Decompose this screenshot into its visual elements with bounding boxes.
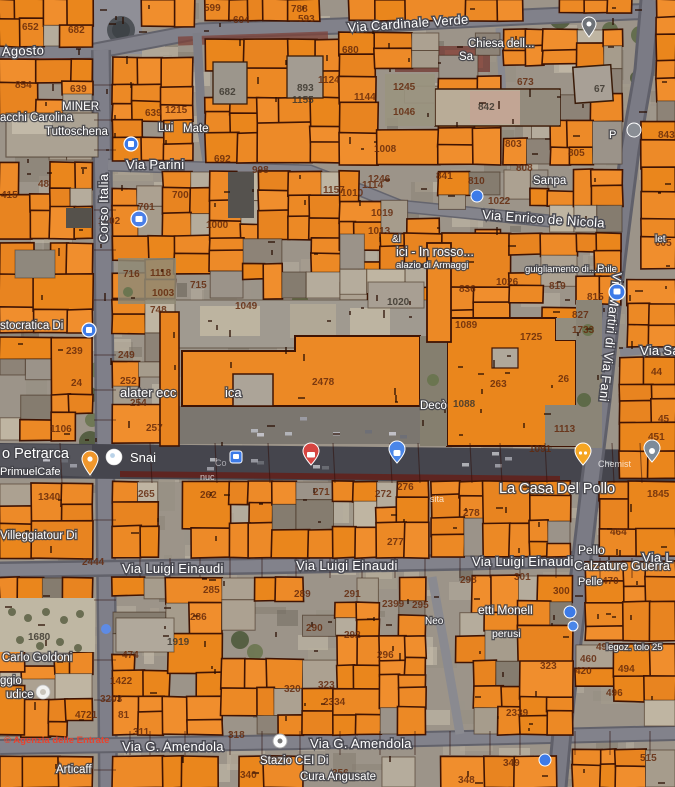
svg-text:La Casa Del Pollo: La Casa Del Pollo xyxy=(499,481,615,497)
svg-text:1049: 1049 xyxy=(235,301,258,312)
svg-text:Sanpa: Sanpa xyxy=(533,175,567,187)
svg-text:349: 349 xyxy=(503,758,520,769)
svg-text:1245: 1245 xyxy=(393,82,416,93)
svg-text:2334: 2334 xyxy=(323,697,346,708)
svg-text:836: 836 xyxy=(459,284,476,295)
svg-text:48: 48 xyxy=(38,179,50,190)
svg-text:808: 808 xyxy=(516,163,533,174)
svg-text:286: 286 xyxy=(190,612,207,623)
svg-text:1013: 1013 xyxy=(368,226,391,237)
svg-text:340: 340 xyxy=(240,770,257,781)
svg-text:593: 593 xyxy=(298,14,315,25)
svg-text:24: 24 xyxy=(71,378,83,389)
svg-text:494: 494 xyxy=(618,664,635,675)
svg-text:&l: &l xyxy=(392,234,401,245)
svg-text:464: 464 xyxy=(610,527,627,538)
svg-text:Calzature Guerra: Calzature Guerra xyxy=(574,559,670,573)
svg-text:1046: 1046 xyxy=(393,107,416,118)
svg-text:682: 682 xyxy=(219,87,236,98)
svg-text:Via Parini: Via Parini xyxy=(126,157,184,172)
svg-text:Pelle: Pelle xyxy=(578,576,602,588)
svg-text:81: 81 xyxy=(118,710,130,721)
svg-text:legoz. tolo 25: legoz. tolo 25 xyxy=(606,642,663,653)
svg-text:Mate: Mate xyxy=(183,123,209,135)
svg-text:67: 67 xyxy=(594,84,606,95)
svg-text:1019: 1019 xyxy=(371,208,394,219)
svg-text:265: 265 xyxy=(138,489,155,500)
svg-text:1026: 1026 xyxy=(496,277,519,288)
svg-text:998: 998 xyxy=(252,165,269,176)
svg-text:278: 278 xyxy=(463,508,480,519)
svg-text:o Petrarca: o Petrarca xyxy=(2,446,70,462)
svg-text:udice: udice xyxy=(6,689,34,701)
svg-text:496: 496 xyxy=(606,688,623,699)
svg-text:26: 26 xyxy=(558,374,570,385)
svg-text:300: 300 xyxy=(553,586,570,597)
svg-text:Neo: Neo xyxy=(425,616,444,627)
svg-text:515: 515 xyxy=(640,753,657,764)
svg-text:810: 810 xyxy=(468,176,485,187)
svg-text:652: 652 xyxy=(22,22,39,33)
svg-text:3203: 3203 xyxy=(100,694,123,705)
svg-text:alazio di Armaggi: alazio di Armaggi xyxy=(396,260,468,271)
svg-text:291: 291 xyxy=(344,589,361,600)
svg-text:323: 323 xyxy=(540,661,557,672)
svg-text:1155: 1155 xyxy=(292,95,314,106)
svg-text:1845: 1845 xyxy=(647,489,670,500)
svg-text:Villeggiatour Di: Villeggiatour Di xyxy=(0,530,77,542)
svg-text:272: 272 xyxy=(375,489,392,500)
svg-text:680: 680 xyxy=(342,45,359,56)
svg-text:1215: 1215 xyxy=(165,105,188,116)
svg-text:Via Luigi Einaudi: Via Luigi Einaudi xyxy=(296,558,398,573)
svg-text:© Agenzia delle Entrate: © Agenzia delle Entrate xyxy=(4,735,109,746)
svg-text:348: 348 xyxy=(458,775,475,786)
svg-text:1003: 1003 xyxy=(152,288,175,299)
svg-text:Articaff: Articaff xyxy=(56,764,92,776)
svg-text:289: 289 xyxy=(294,589,311,600)
svg-text:843: 843 xyxy=(658,130,675,141)
svg-text:1089: 1089 xyxy=(455,320,478,331)
svg-text:292: 292 xyxy=(344,630,361,641)
svg-text:alater ecc: alater ecc xyxy=(120,385,177,400)
svg-text:2339: 2339 xyxy=(506,708,529,719)
svg-text:271: 271 xyxy=(313,487,330,498)
svg-text:1733: 1733 xyxy=(572,325,595,336)
svg-text:stocratica Di: stocratica Di xyxy=(0,320,63,332)
svg-text:296: 296 xyxy=(377,650,394,661)
svg-text:639: 639 xyxy=(70,84,87,95)
svg-text:1725: 1725 xyxy=(520,332,543,343)
svg-text:Sa: Sa xyxy=(459,51,474,63)
svg-text:320: 320 xyxy=(284,684,301,695)
svg-text:301: 301 xyxy=(514,572,531,583)
svg-text:599: 599 xyxy=(204,3,221,14)
svg-text:639: 639 xyxy=(145,108,162,119)
svg-text:673: 673 xyxy=(517,77,534,88)
svg-text:1144: 1144 xyxy=(354,92,376,103)
svg-text:805: 805 xyxy=(568,148,585,159)
svg-text:263: 263 xyxy=(490,379,507,390)
svg-text:290: 290 xyxy=(306,623,323,634)
svg-text:2478: 2478 xyxy=(312,377,335,388)
svg-text:1088: 1088 xyxy=(453,399,476,410)
svg-text:318: 318 xyxy=(228,730,245,741)
svg-text:Corso Italia: Corso Italia xyxy=(96,173,111,243)
svg-text:716: 716 xyxy=(123,269,140,280)
svg-text:1000: 1000 xyxy=(206,220,229,231)
svg-text:acchi Carolina: acchi Carolina xyxy=(0,112,73,124)
svg-text:P: P xyxy=(597,263,604,275)
svg-text:470: 470 xyxy=(602,576,619,587)
svg-text:4721: 4721 xyxy=(75,710,98,721)
svg-text:842: 842 xyxy=(478,102,495,113)
svg-text:1680: 1680 xyxy=(28,632,51,643)
svg-text:1919: 1919 xyxy=(167,637,190,648)
svg-text:Via Sa: Via Sa xyxy=(640,343,675,358)
svg-text:803: 803 xyxy=(505,139,522,150)
svg-text:Lui: Lui xyxy=(158,122,173,134)
svg-text:ica: ica xyxy=(225,385,242,400)
svg-text:277: 277 xyxy=(387,537,404,548)
svg-text:45: 45 xyxy=(658,414,670,425)
svg-text:249: 249 xyxy=(118,350,135,361)
svg-text:Via G. Amendola: Via G. Amendola xyxy=(310,736,412,751)
svg-text:44: 44 xyxy=(651,367,663,378)
svg-text:Stazio CEI Di: Stazio CEI Di xyxy=(260,755,328,767)
svg-text:1091: 1091 xyxy=(529,444,552,455)
svg-text:sita: sita xyxy=(430,494,444,504)
svg-text:PrimuelCafe: PrimuelCafe xyxy=(0,466,61,478)
svg-text:1246: 1246 xyxy=(368,174,391,185)
svg-text:etti Monell: etti Monell xyxy=(478,603,533,617)
svg-text:nuc: nuc xyxy=(200,472,215,482)
svg-text:Agosto: Agosto xyxy=(2,43,45,59)
svg-text:Pello: Pello xyxy=(578,543,605,557)
svg-text:298: 298 xyxy=(460,575,477,586)
svg-text:460: 460 xyxy=(580,654,597,665)
svg-text:474: 474 xyxy=(122,650,139,661)
svg-text:295: 295 xyxy=(412,600,429,611)
svg-text:Snai: Snai xyxy=(130,450,156,465)
svg-text:ici - In rosso...: ici - In rosso... xyxy=(396,245,474,259)
svg-text:Cura Angusate: Cura Angusate xyxy=(300,771,376,783)
svg-text:604: 604 xyxy=(233,15,250,26)
svg-text:311: 311 xyxy=(133,727,150,738)
svg-text:1010: 1010 xyxy=(341,188,364,199)
svg-text:819: 819 xyxy=(549,281,566,292)
svg-text:Co: Co xyxy=(215,458,227,468)
svg-text:2399: 2399 xyxy=(382,599,405,610)
svg-text:841: 841 xyxy=(436,171,453,182)
svg-text:1008: 1008 xyxy=(374,144,397,155)
svg-text:Carlo Goldoni: Carlo Goldoni xyxy=(2,652,72,664)
svg-text:239: 239 xyxy=(66,346,83,357)
svg-text:Via G. Amendola: Via G. Amendola xyxy=(122,739,224,754)
svg-text:1022: 1022 xyxy=(488,196,511,207)
svg-text:748: 748 xyxy=(150,305,167,316)
svg-text:276: 276 xyxy=(397,482,414,493)
svg-text:682: 682 xyxy=(68,25,85,36)
svg-text:285: 285 xyxy=(203,585,220,596)
svg-text:Chiesa dell...: Chiesa dell... xyxy=(468,38,534,50)
svg-text:1124: 1124 xyxy=(318,75,340,86)
svg-text:893: 893 xyxy=(297,83,314,94)
svg-text:262: 262 xyxy=(200,490,217,501)
svg-text:Tuttoschena: Tuttoschena xyxy=(45,126,108,138)
svg-text:323: 323 xyxy=(318,680,335,691)
svg-text:854: 854 xyxy=(15,80,32,91)
svg-text:420: 420 xyxy=(575,666,592,677)
svg-text:715: 715 xyxy=(190,280,207,291)
svg-text:P: P xyxy=(609,129,616,141)
svg-text:Decò: Decò xyxy=(420,400,447,412)
svg-text:Via Luigi Einaudi: Via Luigi Einaudi xyxy=(472,554,574,569)
svg-text:692: 692 xyxy=(214,154,231,165)
svg-text:Chemist: Chemist xyxy=(598,459,632,469)
svg-text:1020: 1020 xyxy=(387,297,410,308)
svg-text:1340: 1340 xyxy=(38,492,61,503)
svg-text:perusi: perusi xyxy=(492,628,521,640)
svg-text:let: let xyxy=(655,234,666,245)
svg-text:ggio: ggio xyxy=(0,675,22,687)
svg-text:1106: 1106 xyxy=(50,424,72,435)
svg-text:1118: 1118 xyxy=(150,268,172,279)
svg-text:1113: 1113 xyxy=(554,424,576,435)
svg-text:815: 815 xyxy=(587,292,604,303)
svg-text:1422: 1422 xyxy=(110,676,133,687)
svg-text:257: 257 xyxy=(146,423,163,434)
svg-text:2444: 2444 xyxy=(82,557,105,568)
svg-text:Via Luigi Einaudi: Via Luigi Einaudi xyxy=(122,561,224,576)
svg-text:827: 827 xyxy=(572,310,589,321)
svg-text:415: 415 xyxy=(1,190,18,201)
svg-text:700: 700 xyxy=(172,190,189,201)
